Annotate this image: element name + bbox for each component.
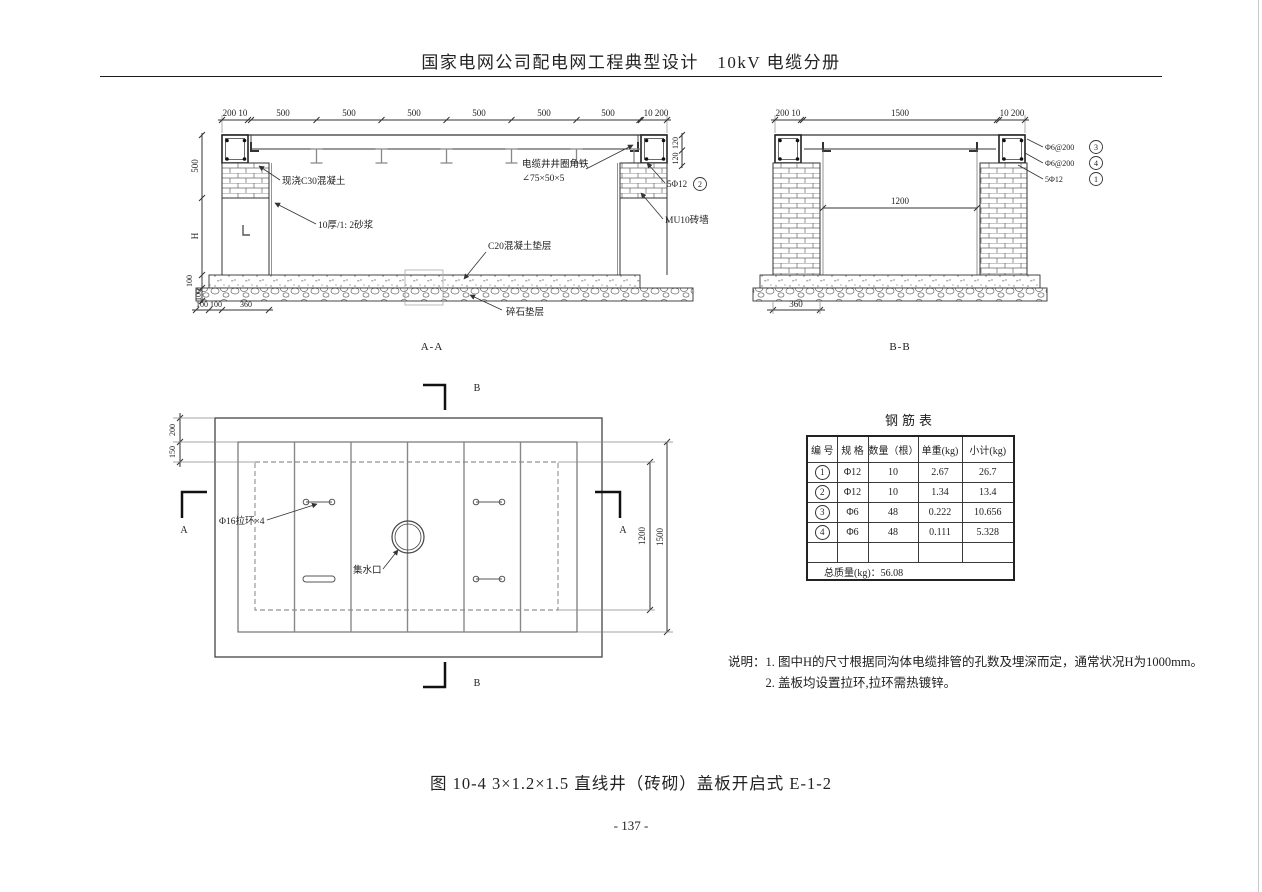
bb-callout-rebar-1: 5Φ12	[1045, 175, 1063, 184]
cell-qty: 10	[868, 463, 918, 483]
aa-dim-500: 500	[537, 108, 551, 118]
section-bb-drawing: 200 10 1500 10 200	[745, 103, 1125, 361]
page-edge-line	[1258, 0, 1259, 892]
col-header-qty: 数量（根）	[868, 436, 918, 463]
cell-spec: Φ12	[837, 483, 868, 503]
rebar-table-header-row: 编 号 规 格 数量（根） 单重(kg) 小计(kg)	[807, 436, 1014, 463]
total-mass: 总质量(kg)：56.08	[807, 563, 1014, 581]
cell-qty: 48	[868, 503, 918, 523]
document-page: 国家电网公司配电网工程典型设计 10kV 电缆分册	[0, 0, 1262, 892]
bb-dim-360: 360	[789, 299, 803, 309]
cell-spec: Φ12	[837, 463, 868, 483]
table-total-row: 总质量(kg)：56.08	[807, 563, 1014, 581]
cell-subtotal: 5.328	[962, 523, 1014, 543]
aa-label-angle-iron-1: 电缆井井圈角铁	[522, 158, 589, 170]
bb-dim-200-10: 200 10	[776, 108, 801, 118]
col-header-no: 编 号	[807, 436, 837, 463]
circled-number: 2	[815, 485, 830, 500]
col-header-spec: 规 格	[837, 436, 868, 463]
notes-label: 说明：	[728, 652, 766, 693]
cell-unit: 1.34	[918, 483, 962, 503]
plan-marker-a-left: A	[180, 525, 188, 536]
plan-label-pull-ring: Φ16拉环×4	[219, 515, 265, 527]
table-row: 1 Φ12 10 2.67 26.7	[807, 463, 1014, 483]
cell-unit: 0.111	[918, 523, 962, 543]
aa-dim-500: 500	[407, 108, 421, 118]
figure-caption: 图 10-4 3×1.2×1.5 直线井（砖砌）盖板开启式 E-1-2	[0, 770, 1262, 794]
aa-dim-10-200: 10 200	[644, 108, 669, 118]
aa-label-angle-iron-2: ∠75×50×5	[522, 174, 565, 184]
plan-outline	[215, 418, 602, 657]
page-number: - 137 -	[0, 818, 1262, 834]
plan-dim-150: 150	[168, 446, 177, 458]
cell-no: 4	[807, 523, 837, 543]
aa-dim-bottom-360: 360	[240, 300, 252, 309]
cell-unit: 0.222	[918, 503, 962, 523]
col-header-unit-weight: 单重(kg)	[918, 436, 962, 463]
aa-dim-left-h: H	[190, 232, 200, 239]
aa-dim-left-100: 100	[185, 275, 194, 287]
circled-number: 3	[815, 505, 830, 520]
bb-callout-rebar-4: Φ6@200	[1045, 159, 1074, 168]
plan-left-dims	[173, 413, 255, 467]
plan-marker-b-top: B	[474, 383, 481, 394]
aa-step-symbol	[243, 225, 250, 235]
aa-dim-500: 500	[472, 108, 486, 118]
cell-qty: 48	[868, 523, 918, 543]
plan-marker-a-right: A	[619, 525, 627, 536]
table-row: 3 Φ6 48 0.222 10.656	[807, 503, 1014, 523]
circled-number: 4	[815, 525, 830, 540]
aa-right-collar-beam	[641, 135, 667, 163]
plan-view-drawing: B B A A 200 150 1200 1500	[155, 375, 775, 700]
plan-dim-1500: 1500	[655, 528, 665, 547]
bb-dim-1200: 1200	[891, 196, 910, 206]
aa-base-layers	[196, 270, 693, 305]
notes-block: 说明： 1. 图中H的尺寸根据同沟体电缆排管的孔数及埋深而定，通常状况H为100…	[728, 652, 1228, 693]
note-item-2: 2. 盖板均设置拉环,拉环需热镀锌。	[766, 673, 1204, 694]
document-header-title: 国家电网公司配电网工程典型设计 10kV 电缆分册	[0, 48, 1262, 73]
rebar-table-title: 钢筋表	[806, 410, 1015, 429]
plan-label-water-inlet: 集水口	[353, 564, 382, 576]
cell-subtotal: 10.656	[962, 503, 1014, 523]
table-row-empty	[807, 543, 1014, 563]
aa-caption: A-A	[421, 341, 444, 353]
aa-dim-left-500: 500	[190, 159, 200, 173]
notes-items: 1. 图中H的尺寸根据同沟体电缆排管的孔数及埋深而定，通常状况H为1000mm。…	[766, 652, 1204, 693]
aa-left-collar-beam	[222, 135, 248, 163]
bb-deck	[775, 135, 1025, 151]
bb-callout-no-1: 1	[1094, 175, 1098, 184]
aa-ibeams	[311, 149, 641, 163]
cell-spec: Φ6	[837, 523, 868, 543]
cell-no: 2	[807, 483, 837, 503]
cell-qty: 10	[868, 483, 918, 503]
bb-callout-rebar-3: Φ6@200	[1045, 143, 1074, 152]
aa-dim-bottom-100: 100	[210, 300, 222, 309]
bb-callout-no-3: 3	[1094, 143, 1098, 152]
cell-subtotal: 13.4	[962, 483, 1014, 503]
plan-section-markers	[182, 385, 620, 687]
plan-pull-ring-handles	[303, 499, 505, 582]
aa-dim-500: 500	[342, 108, 356, 118]
note-item-1: 1. 图中H的尺寸根据同沟体电缆排管的孔数及埋深而定，通常状况H为1000mm。	[766, 652, 1204, 673]
col-header-subtotal: 小计(kg)	[962, 436, 1014, 463]
cell-subtotal: 26.7	[962, 463, 1014, 483]
bb-caption: B-B	[889, 341, 910, 353]
section-aa-drawing: 200 10 500 500 500 500 500 500 10 200	[170, 103, 730, 361]
circled-number: 1	[815, 465, 830, 480]
plan-dim-1200: 1200	[637, 527, 647, 546]
aa-label-mortar: 10厚/1: 2砂浆	[318, 219, 374, 231]
header-rule	[100, 76, 1162, 77]
aa-label-cast-concrete: 现浇C30混凝土	[282, 175, 346, 187]
rebar-table-block: 钢筋表 编 号 规 格 数量（根） 单重(kg) 小计(kg) 1 Φ12 10…	[806, 410, 1015, 581]
aa-dim-200-10: 200 10	[223, 108, 248, 118]
cell-no: 1	[807, 463, 837, 483]
bb-left-collar-beam	[775, 135, 801, 163]
aa-label-rebar: 5Φ12	[667, 179, 687, 189]
aa-label-concrete-cushion: C20混凝土垫层	[488, 240, 551, 252]
cell-spec: Φ6	[837, 503, 868, 523]
bb-callout-no-4: 4	[1094, 159, 1098, 168]
aa-dim-500: 500	[276, 108, 290, 118]
plan-dim-200: 200	[168, 424, 177, 436]
bb-right-collar-beam	[999, 135, 1025, 163]
plan-leaders	[267, 504, 398, 569]
aa-left-dims	[199, 132, 205, 304]
bb-walls	[773, 149, 1027, 275]
aa-dim-bottom-100: 100	[196, 300, 208, 309]
bb-dim-10-200: 10 200	[1000, 108, 1025, 118]
bb-base-layers	[753, 275, 1047, 301]
plan-marker-b-bottom: B	[474, 678, 481, 689]
aa-rebar-mark-number: 2	[698, 180, 702, 189]
table-row: 2 Φ12 10 1.34 13.4	[807, 483, 1014, 503]
bb-dim-1500: 1500	[891, 108, 910, 118]
aa-label-brick-wall: MU10砖墙	[665, 214, 709, 226]
table-row: 4 Φ6 48 0.111 5.328	[807, 523, 1014, 543]
aa-dim-120: 120	[671, 153, 680, 165]
aa-label-gravel-cushion: 碎石垫层	[506, 306, 544, 318]
cell-unit: 2.67	[918, 463, 962, 483]
rebar-table: 编 号 规 格 数量（根） 单重(kg) 小计(kg) 1 Φ12 10 2.6…	[806, 435, 1015, 581]
aa-dim-120: 120	[671, 137, 680, 149]
aa-dim-500: 500	[601, 108, 615, 118]
cell-no: 3	[807, 503, 837, 523]
